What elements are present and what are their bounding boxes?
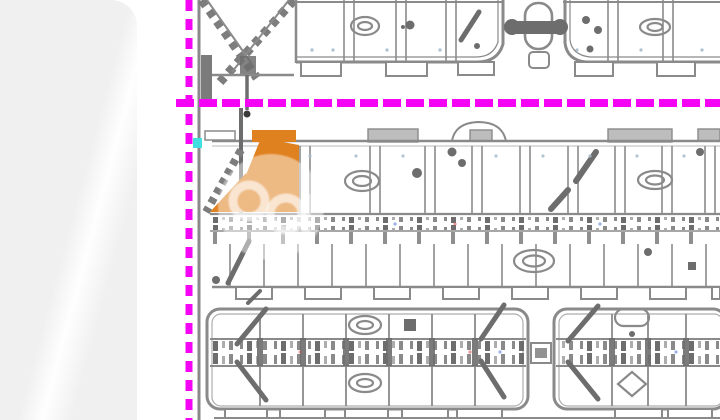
bottom-townhouse-blocks — [207, 291, 720, 418]
walkway-gate-symbol — [504, 3, 568, 68]
upper-row-dividers — [300, 146, 715, 213]
dimension-band-block2 — [558, 341, 720, 364]
cyan-marker — [193, 138, 202, 148]
lower-row-porch-tabs — [236, 287, 720, 299]
listing-photo-frame — [0, 0, 720, 420]
highlighted-parcel-porch — [252, 130, 296, 142]
survey-dots — [310, 48, 703, 51]
bottom-blocks-porch-tabs — [225, 409, 712, 418]
site-plan-image[interactable] — [0, 0, 720, 420]
watermark-logo — [218, 154, 324, 260]
lower-row-dividers — [230, 244, 706, 287]
top-townhouse-row — [295, 0, 720, 76]
screenshot-root: { "image": { "type": "subdivision-site-p… — [0, 0, 720, 420]
